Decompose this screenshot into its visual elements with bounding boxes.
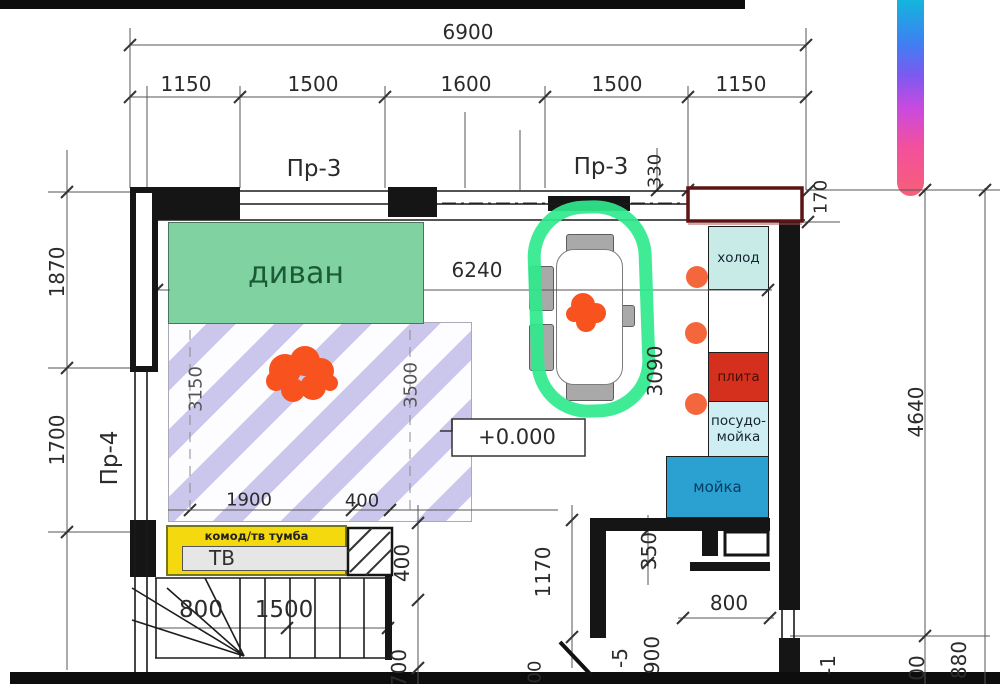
left-window-frame [133,190,155,369]
dim-top-2: 1500 [288,72,339,96]
fridge: холод [708,226,769,291]
opening-label-pr4: Пр-4 [97,431,123,486]
orange-dots [685,266,708,415]
sink: мойка [666,456,769,518]
tv-cabinet-label: комод/тв тумба [168,529,345,543]
dim-top-3: 1600 [441,72,492,96]
dimension-labels: 6900 1150 1500 1600 1500 1150 Пр-3 Пр-3 … [0,0,1000,684]
dim-800-hall: 800 [710,591,748,615]
hall-pillar [725,532,768,555]
dim-4640: 4640 [904,387,928,438]
chair-left-1 [529,266,554,311]
opening-label-pr3-1: Пр-3 [287,156,342,182]
dim-400-stairs: 400 [390,544,414,582]
dim-1700: 1700 [45,415,69,466]
level-minus5: -5 [608,648,632,668]
dim-800-stairs: 800 [179,597,223,623]
dim-top-1: 1150 [161,72,212,96]
bottom-black-bar [10,672,1000,684]
opening-label-pr3-2: Пр-3 [574,154,629,180]
dining-table [556,249,623,385]
dim-1500-stairs: 1500 [255,597,314,623]
sink-label: мойка [693,479,742,496]
dim-total-width: 6900 [443,20,494,44]
tv: ТВ [182,546,361,571]
striped-rug [168,322,472,522]
stairs [132,578,392,658]
top-black-bar [0,0,745,9]
dim-6240: 6240 [452,258,503,282]
stove: плита [708,352,769,403]
gradient-marker-stripe [897,0,924,196]
sofa-label: диван [248,256,344,291]
dim-top-5: 1150 [716,72,767,96]
door-leaf [560,642,592,676]
dim-900: 900 [640,636,664,674]
dim-top-4: 1500 [592,72,643,96]
dim-1170: 1170 [531,547,555,598]
dim-880: 880 [947,641,971,679]
dim-330: 330 [645,154,666,188]
dim-partial-left: 00 [525,661,546,684]
dishwasher-label: посудо-мойка [711,414,767,444]
dim-partial-mid: -1 [816,655,840,675]
dim-partial-right: 00 [905,655,929,680]
tv-cabinet: комод/тв тумба ТВ [166,525,347,576]
dim-1870: 1870 [45,247,69,298]
level-zero-mark: +0.000 [478,425,556,449]
kitchen-cabinet [708,289,769,354]
dim-3090: 3090 [643,346,667,397]
sofa: диван [168,222,424,324]
dim-350: 350 [637,532,661,570]
dark-red-opening [688,188,802,221]
dim-170: 170 [811,180,832,214]
stove-label: плита [717,370,759,385]
chair-left-2 [529,324,554,371]
fridge-label: холод [717,251,759,266]
dim-700-stairs: 700 [387,649,411,684]
dishwasher: посудо-мойка [708,401,769,458]
floor-plan-screenshot: диван холод плита посудо-мойка мойка ком… [0,0,1000,684]
plan-linework [0,0,1000,684]
